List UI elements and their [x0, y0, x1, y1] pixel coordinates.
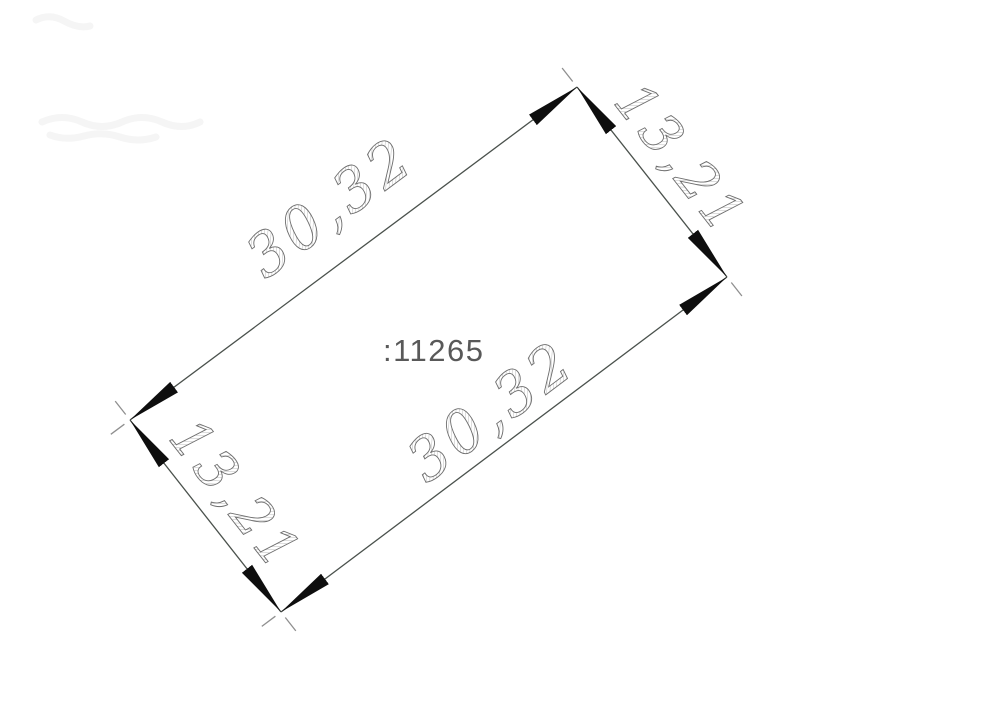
corner-tick-left-lower — [111, 424, 125, 434]
drawing-surface: 30,32 13,21 30,32 13,21 :11265 — [0, 0, 1000, 706]
cad-dimension-sketch: 30,32 13,21 30,32 13,21 :11265 — [0, 0, 1000, 706]
area-label: :11265 — [383, 333, 485, 368]
corner-tick-right — [731, 283, 742, 297]
dimension-label-bottom-left: 13,21 — [157, 407, 314, 583]
corner-tick-top — [562, 68, 573, 82]
dimension-label-top-left: 30,32 — [233, 123, 427, 292]
faint-artifact — [36, 17, 200, 140]
dimension-label-top-right: 13,21 — [602, 71, 760, 247]
corner-tick-bottom-left — [262, 616, 276, 626]
dimension-line-bottom-right — [281, 277, 727, 612]
corner-tick-bottom-right — [285, 618, 296, 631]
corner-tick-left-upper — [115, 401, 126, 414]
